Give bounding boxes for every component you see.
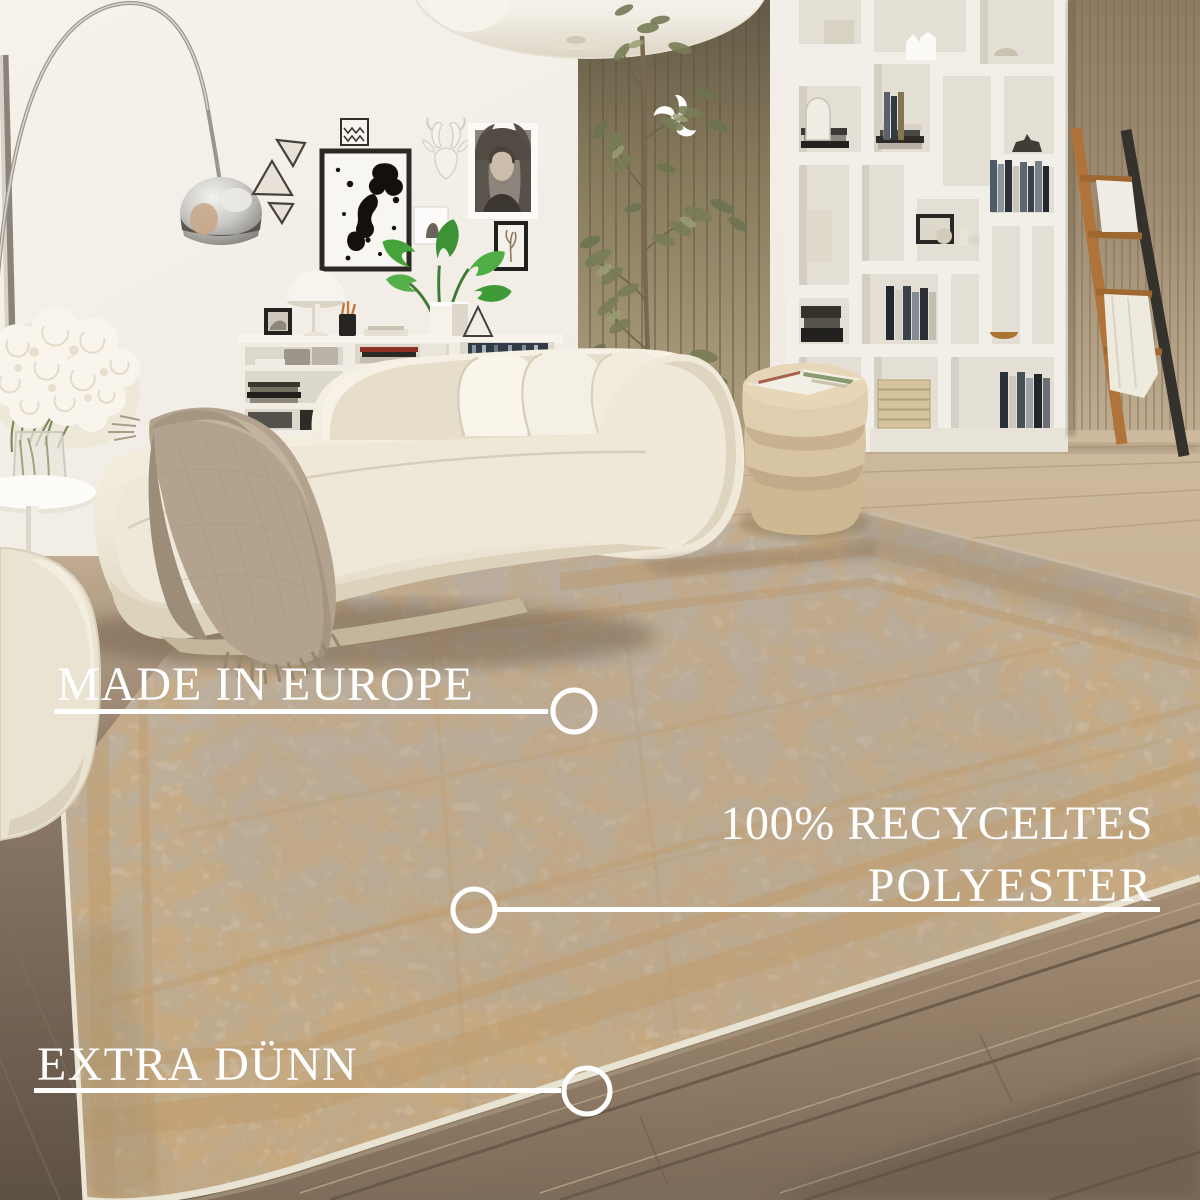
svg-text:100% RECYCELTES: 100% RECYCELTES <box>720 797 1153 850</box>
svg-text:EXTRA DÜNN: EXTRA DÜNN <box>37 1038 358 1091</box>
svg-text:POLYESTER: POLYESTER <box>868 859 1153 912</box>
svg-text:MADE IN EUROPE: MADE IN EUROPE <box>57 658 474 711</box>
